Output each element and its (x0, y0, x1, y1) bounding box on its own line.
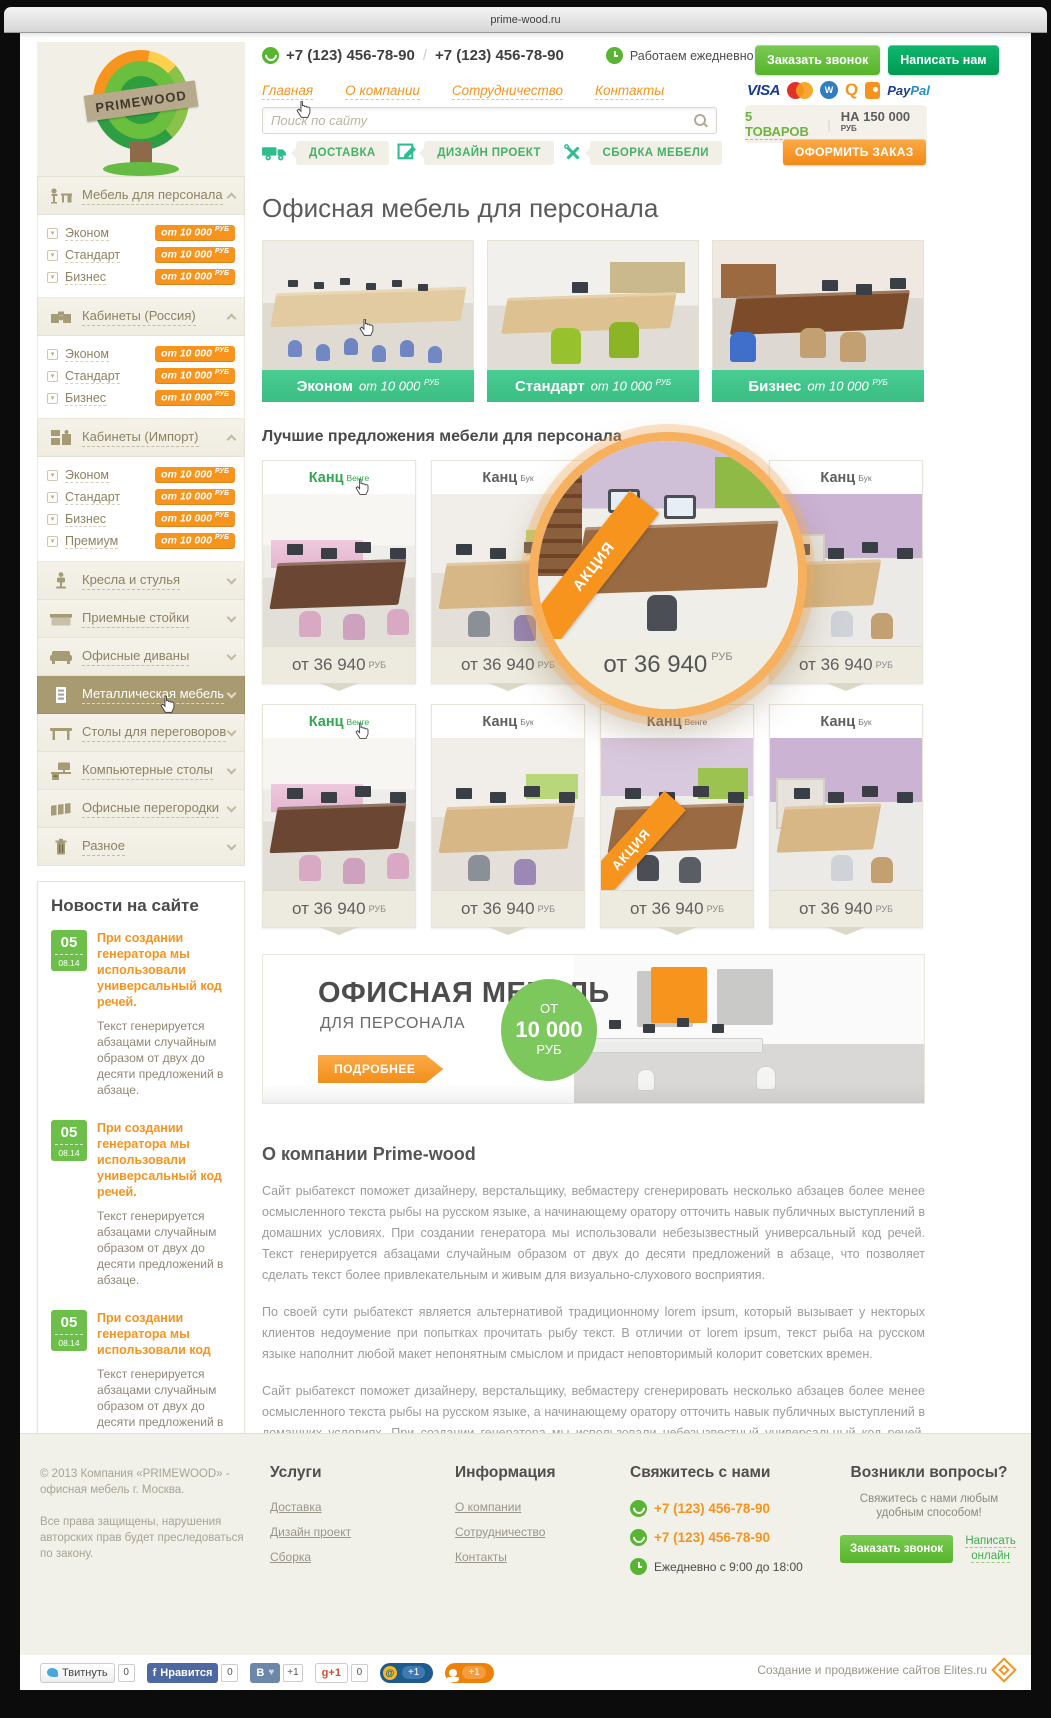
dropdown-box-icon: ▾ (47, 393, 58, 404)
product-price: от 36 940РУБ (770, 646, 922, 683)
chevron-down-icon (227, 727, 237, 737)
site-search (262, 107, 717, 134)
chevron-up-icon (227, 435, 237, 445)
footer: © 2013 Компания «PRIMEWOOD» - офисная ме… (20, 1433, 1031, 1655)
cart-summary: 5 ТОВАРОВ | НА 150 000 РУБ (745, 105, 927, 143)
paypal-icon: PayPal (887, 83, 930, 98)
footer-link-delivery[interactable]: Доставка (270, 1500, 351, 1514)
elites-logo-icon (991, 1657, 1016, 1682)
dropdown-box-icon: ▾ (47, 492, 58, 503)
sidebar: Мебель для персонала ▾Экономот 10 000 РУ… (37, 176, 245, 1483)
footer-questions: Возникли вопросы? Свяжитесь с нами любым… (840, 1464, 1018, 1564)
qiwi-icon: Q (845, 80, 858, 100)
product-card[interactable]: КанцВенге от 36 940РУБ (262, 460, 416, 684)
news-item: 0508.14 При создании генератора мы испол… (51, 1310, 231, 1446)
product-photo (263, 738, 415, 890)
design-service: ДИЗАЙН ПРОЕКТ (397, 141, 554, 165)
chevron-down-icon (227, 613, 237, 623)
twitter-count: 0 (118, 1664, 135, 1682)
product-title: КанцВенге (263, 461, 415, 494)
price-badge: от 10 000 РУБ (155, 533, 235, 549)
news-item-title[interactable]: При создании генератора мы использовали … (97, 1120, 231, 1200)
product-card[interactable]: КанцБук от 36 940РУБ (431, 704, 585, 928)
sidebar-subitem-premium[interactable]: ▾Премиумот 10 000 РУБ (47, 530, 235, 552)
sidebar-item-sofas[interactable]: Офисные диваны (37, 638, 245, 676)
visa-icon: VISA (747, 82, 780, 99)
banner-photo (574, 955, 924, 1103)
vk-icon: В (256, 1667, 264, 1679)
delivery-service: ДОСТАВКА (262, 141, 389, 165)
footer-hours: Ежедневно с 9:00 до 18:00 (630, 1558, 803, 1575)
dropdown-box-icon: ▾ (47, 536, 58, 547)
header: PRIMEWOOD +7 (123) 456-78-90 / +7 (123) … (20, 33, 1031, 183)
banner-price-circle: ОТ 10 000 РУБ (501, 979, 597, 1081)
category-photo (712, 240, 924, 370)
news-title: Новости на сайте (51, 896, 231, 916)
category-photo (262, 240, 474, 370)
facebook-count: 0 (221, 1664, 238, 1682)
sofa-icon (46, 648, 76, 665)
chevron-up-icon (227, 314, 237, 324)
reception-desk-icon (46, 610, 76, 627)
sidebar-subitem-biznes[interactable]: ▾Бизнесот 10 000 РУБ (47, 266, 235, 288)
zoom-lens: АКЦИЯ от 36 940РУБ (529, 432, 807, 718)
sidebar-item-reception[interactable]: Приемные стойки (37, 600, 245, 638)
clock-icon (606, 47, 623, 64)
logo[interactable]: PRIMEWOOD (37, 42, 245, 176)
sidebar-item-computer-desks[interactable]: Компьютерные столы (37, 752, 245, 790)
dropdown-box-icon: ▾ (47, 228, 58, 239)
about-title: О компании Prime-wood (262, 1144, 925, 1165)
category-tiles: Экономот 10 000 РУБ Стандартот 10 000 РУ… (262, 240, 925, 402)
product-card[interactable]: КанцВенге от 36 940РУБ (262, 704, 416, 928)
product-price: от 36 940РУБ (601, 890, 753, 927)
gplus-count: 0 (351, 1664, 368, 1682)
clock-icon (630, 1558, 647, 1575)
webmoney-icon: W (820, 81, 838, 99)
about-paragraph: По своей сути рыбатекст является альтерн… (262, 1302, 925, 1365)
sidebar-subitem-biznes[interactable]: ▾Бизнесот 10 000 РУБ (47, 508, 235, 530)
product-grid: КанцВенге от 36 940РУБ КанцБук от 36 940… (262, 460, 925, 928)
sidebar-item-metal-furniture[interactable]: Металлическая мебель (37, 676, 245, 714)
footer-link-assembly[interactable]: Сборка (270, 1550, 351, 1564)
site-credits: Создание и продвижение сайтов Elites.ru (757, 1661, 1013, 1679)
price-badge: от 10 000 РУБ (155, 225, 235, 241)
assembly-service: СБОРКА МЕБЕЛИ (563, 141, 722, 165)
sidebar-item-cabinets-import[interactable]: Кабинеты (Импорт) (37, 419, 245, 457)
category-photo (487, 240, 699, 370)
main-content: Офисная мебель для персонала Экономот 10… (262, 167, 925, 1486)
nav-home[interactable]: Главная (262, 83, 313, 100)
facebook-icon: f (153, 1667, 157, 1679)
sidebar-item-misc[interactable]: Разное (37, 828, 245, 866)
dropdown-box-icon: ▾ (47, 470, 58, 481)
category-tile-standart[interactable]: Стандартот 10 000 РУБ (487, 240, 699, 402)
main-nav: Главная О компании Сотрудничество Контак… (262, 83, 664, 100)
gplus-button[interactable]: g+1 (315, 1663, 348, 1683)
footer-phone-1: +7 (123) 456-78-90 (630, 1500, 803, 1517)
submenu: ▾Экономот 10 000 РУБ ▾Стандартот 10 000 … (37, 336, 245, 419)
product-photo (263, 494, 415, 646)
banner-subtitle: ДЛЯ ПЕРСОНАЛА (320, 1015, 465, 1033)
product-price: от 36 940РУБ (770, 890, 922, 927)
phone-number-1: +7 (123) 456-78-90 (286, 47, 415, 64)
news-item-title[interactable]: При создании генератора мы использовали … (97, 1310, 231, 1358)
meeting-table-icon (46, 724, 76, 741)
chevron-down-icon (227, 803, 237, 813)
product-photo (770, 738, 922, 890)
news-item-title[interactable]: При создании генератора мы использовали … (97, 930, 231, 1010)
sidebar-item-meeting-tables[interactable]: Столы для переговоров (37, 714, 245, 752)
news-item-text: Текст генерируется абзацами случайным об… (97, 1208, 231, 1288)
product-title: КанцВенге (263, 705, 415, 738)
footer-callback-button[interactable]: Заказать звонок (840, 1535, 953, 1563)
payment-methods: VISA W Q PayPal (747, 79, 930, 101)
sidebar-subitem-econom[interactable]: ▾Экономот 10 000 РУБ (47, 343, 235, 365)
browser-chrome: prime-wood.ru (4, 7, 1047, 33)
dropdown-box-icon: ▾ (47, 371, 58, 382)
category-tile-biznes[interactable]: Бизнесот 10 000 РУБ (712, 240, 924, 402)
vk-widget: В♥ +1 (250, 1663, 302, 1683)
mailru-button[interactable]: @+1 (380, 1663, 433, 1683)
page: PRIMEWOOD +7 (123) 456-78-90 / +7 (123) … (20, 33, 1031, 1690)
product-card[interactable]: КанцВенге АКЦИЯ от 36 940РУБ (600, 704, 754, 928)
mailru-icon: @ (383, 1666, 397, 1680)
trash-bin-icon (46, 838, 76, 856)
computer-desk-icon (46, 762, 76, 780)
dropdown-box-icon: ▾ (47, 250, 58, 261)
price-badge: от 10 000 РУБ (155, 247, 235, 263)
tools-icon (563, 143, 583, 163)
partition-icon (46, 800, 76, 818)
ok-button[interactable]: +1 (445, 1663, 493, 1683)
news-item-text: Текст генерируется абзацами случайным об… (97, 1018, 231, 1098)
chevron-down-icon (227, 575, 237, 585)
chevron-up-icon (227, 193, 237, 203)
product-title: КанцБук (770, 705, 922, 738)
price-badge: от 10 000 РУБ (155, 346, 235, 362)
product-title: КанцБук (432, 705, 584, 738)
dropdown-box-icon: ▾ (47, 272, 58, 283)
product-price: от 36 940РУБ (263, 890, 415, 927)
footer-services: Услуги Доставка Дизайн проект Сборка (270, 1464, 351, 1575)
product-card[interactable]: КанцБук от 36 940РУБ (769, 704, 923, 928)
footer-write-online-link[interactable]: Написать онлайн (963, 1534, 1018, 1564)
sidebar-item-cabinets-russia[interactable]: Кабинеты (Россия) (37, 298, 245, 336)
page-title: Офисная мебель для персонала (262, 193, 925, 224)
sidebar-item-chairs[interactable]: Кресла и стулья (37, 562, 245, 600)
footer-info: Информация О компании Сотрудничество Кон… (455, 1464, 556, 1575)
twitter-widget: Твитнуть 0 (40, 1663, 135, 1683)
sidebar-subitem-standart[interactable]: ▾Стандартот 10 000 РУБ (47, 244, 235, 266)
chevron-down-icon (227, 765, 237, 775)
write-us-button[interactable]: Написать нам (888, 45, 998, 75)
tree-logo-icon: PRIMEWOOD (93, 50, 189, 176)
sidebar-item-staff-furniture[interactable]: Мебель для персонала (37, 177, 245, 215)
sidebar-subitem-biznes[interactable]: ▾Бизнесот 10 000 РУБ (47, 387, 235, 409)
search-icon[interactable] (694, 114, 708, 128)
product-price: от 36 940РУБ (432, 890, 584, 927)
product-photo (432, 738, 584, 890)
phone-icon (630, 1500, 647, 1517)
ok-widget: +1 (445, 1663, 493, 1683)
footer-link-contacts[interactable]: Контакты (455, 1550, 556, 1564)
chevron-down-icon (227, 651, 237, 661)
vk-count: +1 (283, 1664, 302, 1682)
sidebar-subitem-standart[interactable]: ▾Стандартот 10 000 РУБ (47, 365, 235, 387)
footer-link-design[interactable]: Дизайн проект (270, 1525, 351, 1539)
chevron-down-icon (227, 689, 237, 699)
category-label: Экономот 10 000 РУБ (262, 370, 474, 402)
chevron-down-icon (227, 841, 237, 851)
category-label: Бизнесот 10 000 РУБ (712, 370, 924, 402)
vk-like-button[interactable]: В♥ (250, 1663, 280, 1683)
footer-phone-2: +7 (123) 456-78-90 (630, 1529, 803, 1546)
truck-icon (262, 144, 289, 162)
checkout-button[interactable]: ОФОРМИТЬ ЗАКАЗ (783, 139, 926, 165)
news-item: 0508.14 При создании генератора мы испол… (51, 930, 231, 1098)
footer-contacts: Свяжитесь с нами +7 (123) 456-78-90 +7 (… (630, 1464, 803, 1575)
metal-cabinet-icon (46, 686, 76, 704)
twitter-icon (47, 1668, 58, 1677)
nav-cooperation[interactable]: Сотрудничество (452, 83, 563, 100)
news-item: 0508.14 При создании генератора мы испол… (51, 1120, 231, 1288)
news-date-badge: 0508.14 (51, 1120, 87, 1161)
sidebar-subitem-standart[interactable]: ▾Стандартот 10 000 РУБ (47, 486, 235, 508)
nav-about[interactable]: О компании (345, 83, 420, 100)
price-badge: от 10 000 РУБ (155, 467, 235, 483)
cabinet-russia-icon (46, 308, 76, 325)
ok-icon (449, 1669, 457, 1677)
phone-icon (630, 1529, 647, 1546)
phone-icon (262, 47, 279, 64)
twitter-button[interactable]: Твитнуть (40, 1663, 115, 1683)
footer-link-cooperation[interactable]: Сотрудничество (455, 1525, 556, 1539)
nav-contacts[interactable]: Контакты (595, 83, 664, 100)
service-links: ДОСТАВКА ДИЗАЙН ПРОЕКТ СБОРКА МЕБЕЛИ (262, 141, 722, 165)
design-pencil-icon (397, 143, 417, 163)
submenu: ▾Экономот 10 000 РУБ ▾Стандартот 10 000 … (37, 215, 245, 298)
phone-number-2: +7 (123) 456-78-90 (435, 47, 564, 64)
browser-url: prime-wood.ru (490, 14, 560, 26)
yandex-money-icon (865, 82, 880, 99)
about-paragraph: Сайт рыбатекст поможет дизайнеру, верста… (262, 1181, 925, 1286)
search-input[interactable] (271, 113, 694, 128)
design-label[interactable]: ДИЗАЙН ПРОЕКТ (424, 141, 554, 165)
price-badge: от 10 000 РУБ (155, 489, 235, 505)
dropdown-box-icon: ▾ (47, 349, 58, 360)
callback-button[interactable]: Заказать звонок (755, 45, 880, 75)
cabinet-import-icon (46, 429, 76, 446)
category-menu: Мебель для персонала ▾Экономот 10 000 РУ… (37, 176, 245, 866)
cart-items-count[interactable]: 5 ТОВАРОВ (745, 109, 817, 140)
staff-furniture-icon (46, 187, 76, 204)
price-badge: от 10 000 РУБ (155, 269, 235, 285)
product-price: от 36 940РУБ (263, 646, 415, 683)
banner-more-button[interactable]: ПОДРОБНЕЕ (318, 1055, 443, 1083)
mastercard-icon (787, 82, 813, 99)
category-tile-econom[interactable]: Экономот 10 000 РУБ (262, 240, 474, 402)
news-date-badge: 0508.14 (51, 1310, 87, 1351)
copyright: © 2013 Компания «PRIMEWOOD» - офисная ме… (40, 1466, 245, 1562)
cart-total: НА 150 000 РУБ (841, 109, 927, 139)
assembly-label[interactable]: СБОРКА МЕБЕЛИ (590, 141, 722, 165)
product-photo: АКЦИЯ (601, 738, 753, 890)
facebook-widget: fНравится 0 (147, 1663, 239, 1683)
heart-icon: ♥ (268, 1667, 274, 1678)
delivery-label[interactable]: ДОСТАВКА (296, 141, 389, 165)
price-badge: от 10 000 РУБ (155, 368, 235, 384)
sidebar-subitem-econom[interactable]: ▾Экономот 10 000 РУБ (47, 464, 235, 486)
promo-banner[interactable]: ОФИСНАЯ МЕБЕЛЬ ДЛЯ ПЕРСОНАЛА ОТ 10 000 Р… (262, 954, 925, 1104)
submenu: ▾Экономот 10 000 РУБ ▾Стандартот 10 000 … (37, 457, 245, 562)
footer-link-about[interactable]: О компании (455, 1500, 556, 1514)
sidebar-item-partitions[interactable]: Офисные перегородки (37, 790, 245, 828)
gplus-widget: g+1 0 (315, 1663, 368, 1683)
price-badge: от 10 000 РУБ (155, 390, 235, 406)
dropdown-box-icon: ▾ (47, 514, 58, 525)
news-panel: Новости на сайте 0508.14 При создании ге… (37, 881, 245, 1483)
mailru-widget: @+1 (380, 1663, 433, 1683)
category-label: Стандартот 10 000 РУБ (487, 370, 699, 402)
facebook-like-button[interactable]: fНравится (147, 1663, 219, 1683)
price-badge: от 10 000 РУБ (155, 511, 235, 527)
office-chair-icon (46, 572, 76, 590)
news-date-badge: 0508.14 (51, 930, 87, 971)
sidebar-subitem-econom[interactable]: ▾Экономот 10 000 РУБ (47, 222, 235, 244)
